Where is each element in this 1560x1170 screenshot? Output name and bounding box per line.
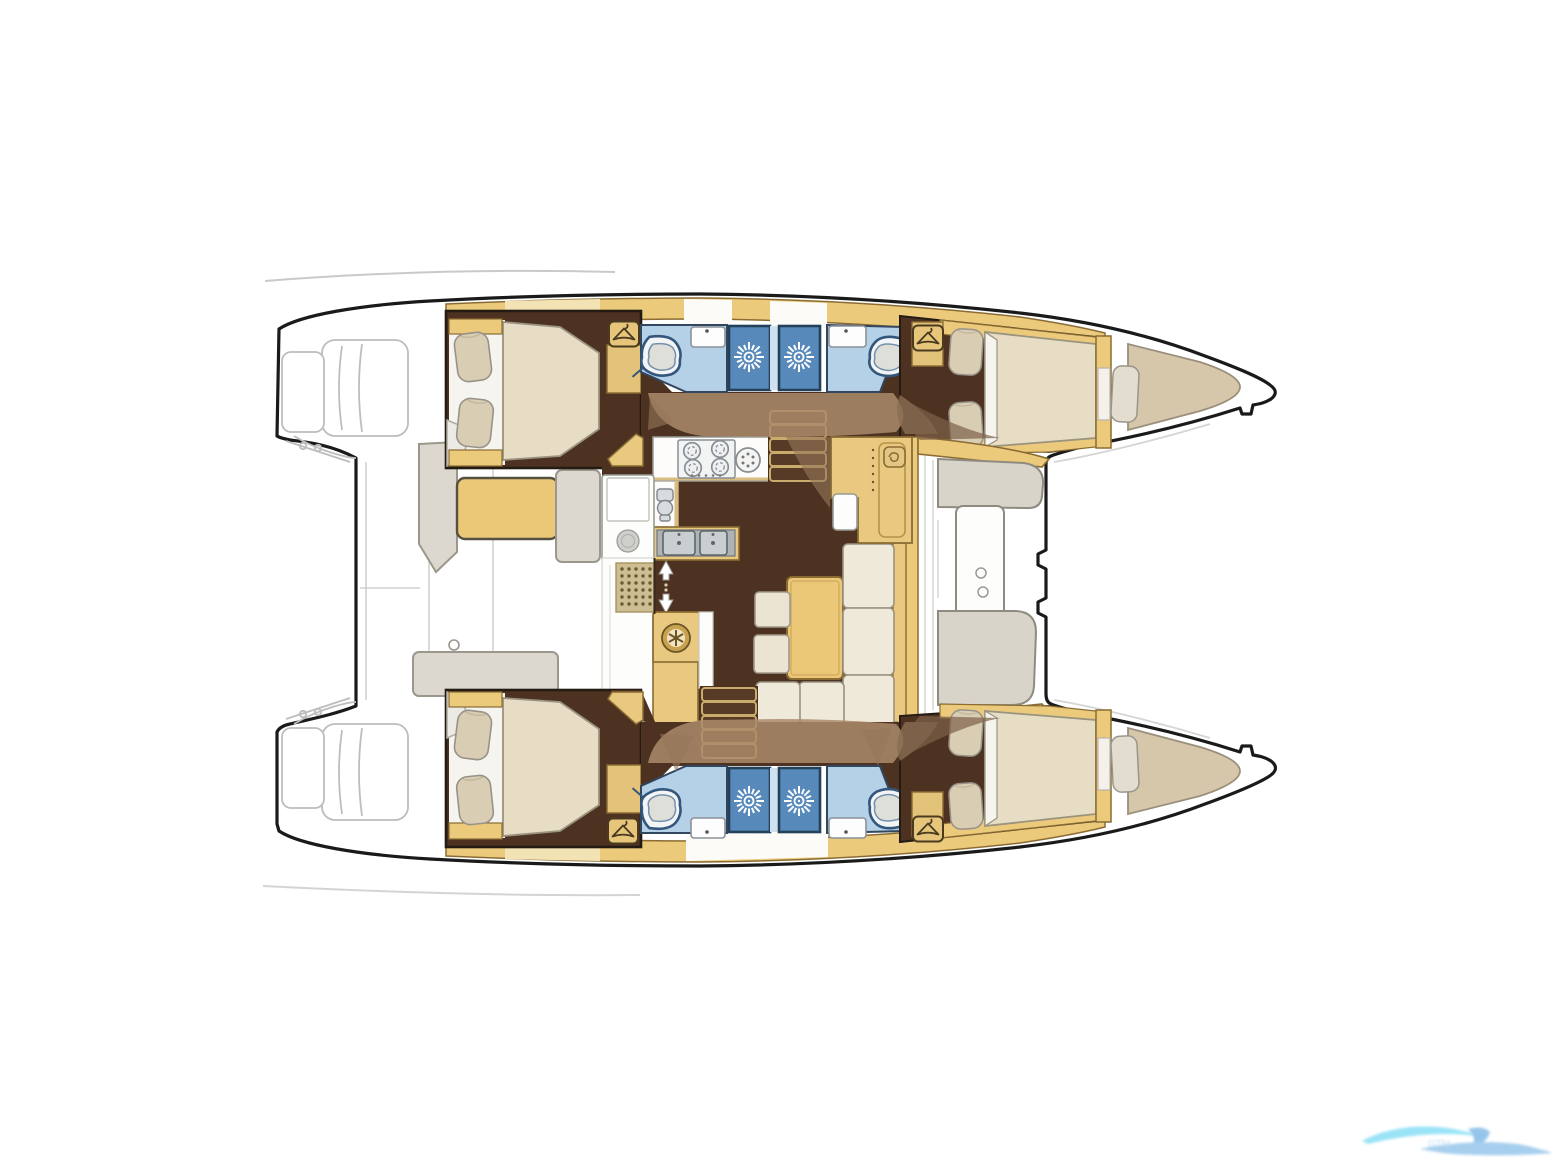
svg-text:GTM: GTM [1428,1139,1450,1150]
